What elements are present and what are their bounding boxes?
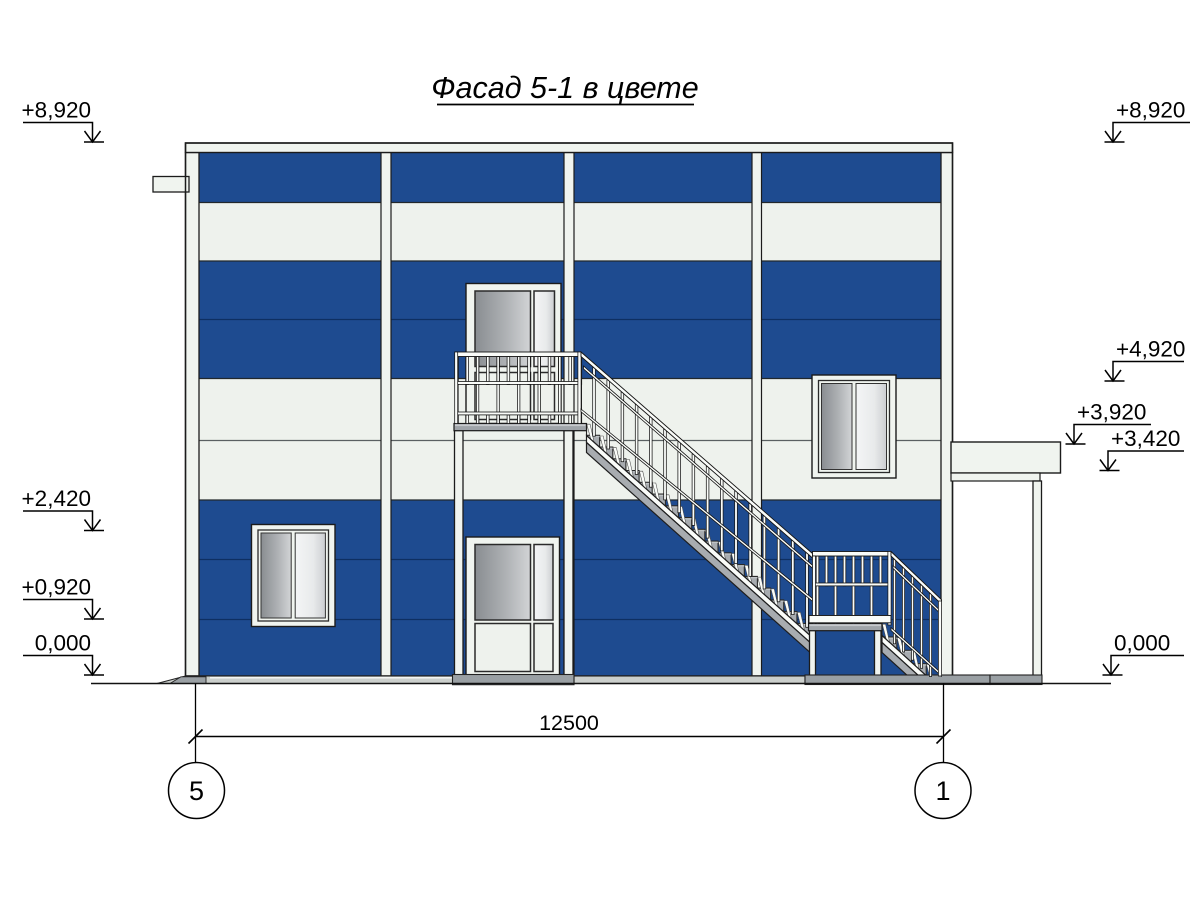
svg-text:5: 5 xyxy=(189,776,204,806)
svg-text:1: 1 xyxy=(935,776,950,806)
svg-text:0,000: 0,000 xyxy=(1114,631,1170,656)
svg-text:+4,920: +4,920 xyxy=(1116,337,1185,362)
svg-text:+8,920: +8,920 xyxy=(1116,98,1185,123)
svg-text:Фасад 5-1 в цвете: Фасад 5-1 в цвете xyxy=(431,71,698,105)
svg-text:0,000: 0,000 xyxy=(35,631,91,656)
svg-text:+2,420: +2,420 xyxy=(22,486,91,511)
svg-text:12500: 12500 xyxy=(539,711,599,735)
svg-text:+3,920: +3,920 xyxy=(1077,400,1146,425)
svg-text:+3,420: +3,420 xyxy=(1111,426,1180,451)
svg-text:+8,920: +8,920 xyxy=(22,98,91,123)
svg-text:+0,920: +0,920 xyxy=(22,575,91,600)
